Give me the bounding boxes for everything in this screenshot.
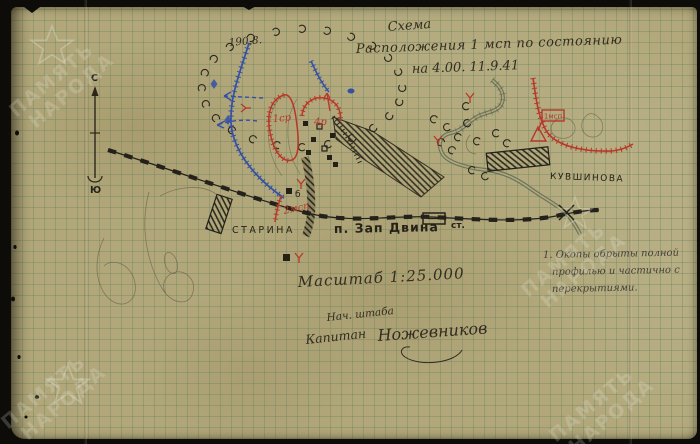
scale-text: Масштаб 1:25.000 [296, 264, 465, 291]
red-line-2msp [275, 196, 281, 222]
station-label: ст. [451, 221, 465, 231]
map-title-line3: на 4.00. 11.9.41 [412, 58, 520, 77]
compass-south-label: Ю [90, 185, 101, 196]
blue-arrows [217, 92, 263, 128]
regiment-cp-label: 1мсп [544, 113, 562, 121]
watermark-overlay: ПАМЯТЬ НАРОДА ПАМЯТЬ НАРОДА ПАМЯТЬ НАРОД… [0, 26, 659, 444]
building-symbol [333, 162, 338, 167]
signature-block: Нач. штаба Капитан Ножевников [304, 305, 488, 363]
building-symbol [327, 155, 332, 160]
starina-label: СТАРИНА [232, 225, 295, 236]
company4-label: 4р [313, 117, 327, 128]
cutting-band [305, 157, 311, 236]
signature-flourish [401, 347, 462, 363]
map-title-line1: Схема [387, 17, 431, 35]
map-drawing: 1мсп С Ю 190,8. СТАРИНА КУВШИНОВА п. З [0, 0, 700, 444]
kuvshinova-block [486, 147, 550, 171]
building-symbol [286, 188, 292, 194]
elevation-label: 190,8. [228, 34, 262, 49]
scanned-map-page: 1мсп С Ю 190,8. СТАРИНА КУВШИНОВА п. З [0, 0, 700, 444]
company1-label: 1ср [272, 112, 292, 125]
building-symbol [311, 137, 316, 142]
map-title-line2: Расположения 1 мсп по состоянию [355, 33, 623, 57]
building-symbol [303, 121, 308, 126]
signature-name: Ножевников [376, 318, 488, 345]
signature-rank: Капитан [304, 326, 367, 347]
building-letter-label: б [295, 190, 301, 200]
kuvshinova-label: КУВШИНОВА [550, 172, 624, 185]
signature-role: Нач. штаба [325, 305, 394, 324]
compass-rose [88, 86, 102, 182]
building-symbol [330, 133, 335, 138]
starina-block [206, 194, 232, 233]
watermark-text-bottom-right: ПАМЯТЬ НАРОДА [545, 358, 659, 444]
building-symbol [283, 254, 290, 261]
zap-dvina-label: п. Зап Двина [334, 219, 439, 236]
regiment-cp-flag: 1мсп [531, 110, 564, 141]
building-symbol [306, 150, 311, 155]
embankment-wedge [333, 117, 444, 197]
watermark-text-bottom-left: ПАМЯТЬ НАРОДА [0, 345, 111, 444]
